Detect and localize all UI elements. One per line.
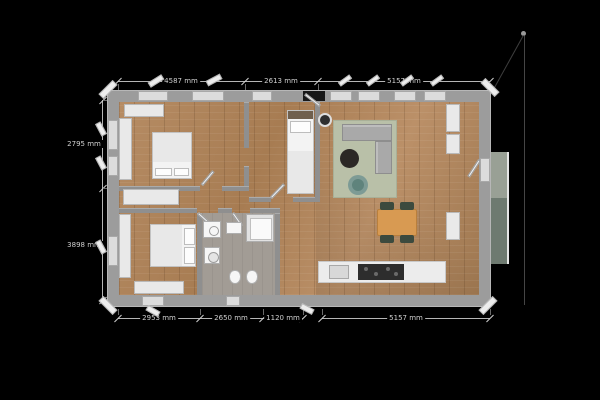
window bbox=[226, 296, 240, 306]
tall-cabinet bbox=[446, 104, 460, 132]
interior-wall bbox=[119, 208, 197, 213]
wardrobe bbox=[119, 118, 132, 180]
kitchen-counter bbox=[318, 261, 446, 283]
dim-label-bottom-2: 2650 mm bbox=[212, 314, 250, 322]
tall-cabinet bbox=[446, 134, 460, 154]
burner bbox=[374, 272, 378, 276]
bed-double-2 bbox=[150, 224, 196, 267]
dim-label-bottom-1: 2953 mm bbox=[140, 314, 178, 322]
window bbox=[142, 296, 164, 306]
dining-chair bbox=[380, 235, 394, 243]
window bbox=[192, 91, 224, 101]
burner bbox=[394, 272, 398, 276]
window-sash bbox=[95, 121, 107, 136]
bed-pillow bbox=[174, 168, 189, 176]
dresser bbox=[134, 281, 184, 294]
bed-pillow bbox=[290, 121, 311, 133]
dim-label-bottom-3: 1120 mm bbox=[264, 314, 302, 322]
interior-wall bbox=[197, 213, 202, 295]
dining-chair bbox=[400, 202, 414, 210]
toilet bbox=[229, 270, 241, 284]
interior-wall bbox=[222, 186, 249, 191]
window bbox=[252, 91, 272, 101]
shower bbox=[246, 214, 274, 242]
accent-chair-seat bbox=[352, 179, 364, 191]
interior-wall bbox=[249, 197, 271, 202]
interior-wall bbox=[244, 102, 249, 148]
interior-wall bbox=[275, 213, 280, 295]
window bbox=[394, 91, 416, 101]
interior-wall bbox=[218, 208, 232, 213]
bed-pillow bbox=[155, 168, 172, 176]
bed-blanket bbox=[151, 225, 182, 266]
window bbox=[108, 120, 118, 150]
window bbox=[424, 91, 446, 101]
window bbox=[358, 91, 380, 101]
washer-door bbox=[209, 226, 219, 236]
kitchen-sink bbox=[329, 265, 349, 279]
bed-blanket bbox=[153, 133, 191, 162]
accent-chair bbox=[348, 175, 368, 195]
dim-extension bbox=[322, 309, 323, 315]
burner bbox=[364, 267, 368, 271]
wardrobe bbox=[119, 214, 131, 278]
window bbox=[138, 91, 168, 101]
guide-line-diagonal bbox=[492, 35, 524, 91]
bed-single bbox=[287, 110, 314, 194]
refrigerator bbox=[446, 212, 460, 240]
hall-closet bbox=[123, 189, 179, 205]
window bbox=[330, 91, 352, 101]
dim-label-top-left: 4587 mm bbox=[162, 77, 200, 85]
bed-pillow bbox=[184, 228, 195, 245]
dim-extension bbox=[118, 309, 119, 315]
dim-label-left-upper: 2795 mm bbox=[65, 140, 103, 148]
interior-wall bbox=[293, 197, 315, 202]
dining-chair bbox=[400, 235, 414, 243]
window-sash bbox=[206, 74, 223, 87]
fan-icon bbox=[318, 113, 332, 127]
window bbox=[108, 236, 118, 266]
dim-extension bbox=[200, 309, 201, 315]
bed-double-1 bbox=[152, 132, 192, 179]
bed-blanket bbox=[288, 151, 313, 193]
window-sash bbox=[95, 239, 107, 254]
bathroom-cabinet bbox=[226, 222, 242, 234]
bed-headboard bbox=[288, 111, 313, 119]
balcony-floor-lower bbox=[491, 198, 508, 264]
dining-chair bbox=[380, 202, 394, 210]
shower-tray bbox=[250, 218, 272, 240]
bathroom-sink bbox=[204, 247, 220, 264]
window bbox=[108, 156, 118, 176]
sofa-section-top bbox=[342, 124, 392, 141]
wardrobe bbox=[124, 104, 164, 117]
dim-label-top-middle: 2613 mm bbox=[262, 77, 300, 85]
floor-plan-viewport[interactable]: 4587 mm 2613 mm 5157 mm 2795 mm 3898 mm … bbox=[0, 0, 600, 400]
interior-wall bbox=[244, 166, 249, 186]
balcony-railing bbox=[507, 152, 509, 264]
bed-pillow bbox=[184, 247, 195, 264]
sink-basin bbox=[208, 252, 219, 263]
washing-machine bbox=[203, 221, 221, 238]
bidet bbox=[246, 270, 258, 284]
sofa-section-right bbox=[375, 141, 392, 174]
burner bbox=[386, 267, 390, 271]
guide-line-vertical bbox=[524, 36, 525, 305]
window-sash bbox=[95, 155, 107, 170]
dim-extension bbox=[490, 309, 491, 315]
coffee-table bbox=[340, 149, 359, 168]
dim-label-bottom-4: 5157 mm bbox=[387, 314, 425, 322]
dining-table bbox=[377, 209, 417, 236]
cooktop bbox=[358, 264, 404, 280]
balcony-floor-upper bbox=[491, 152, 508, 198]
balcony-door-opening bbox=[480, 158, 490, 182]
